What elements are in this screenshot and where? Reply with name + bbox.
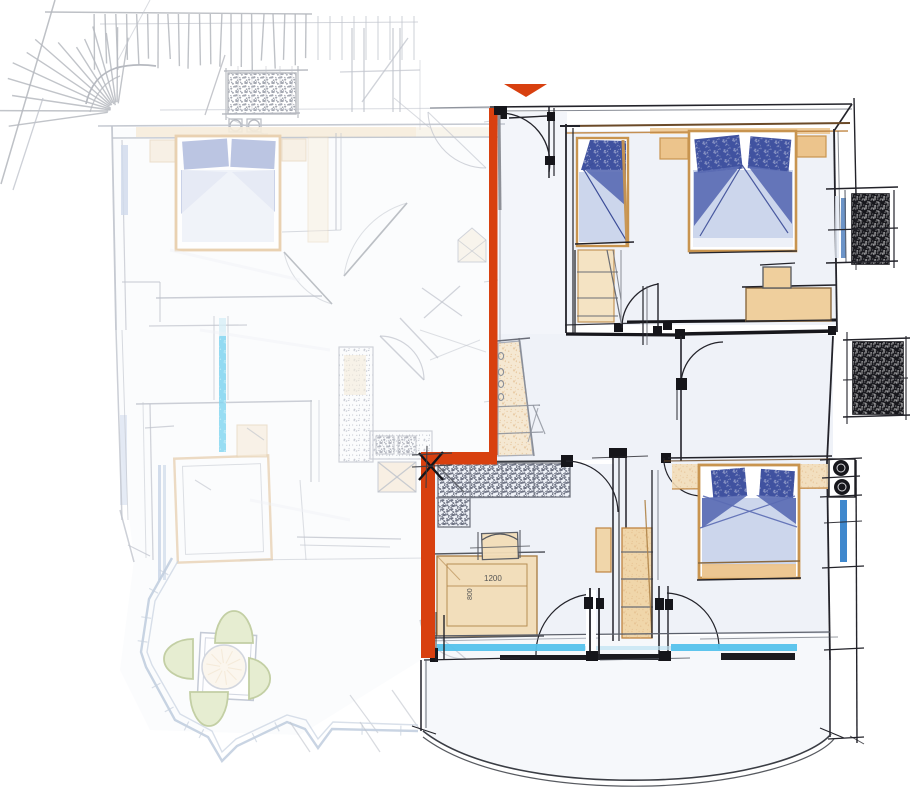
svg-text:800: 800 [467, 588, 474, 600]
svg-text:1200: 1200 [484, 574, 502, 583]
